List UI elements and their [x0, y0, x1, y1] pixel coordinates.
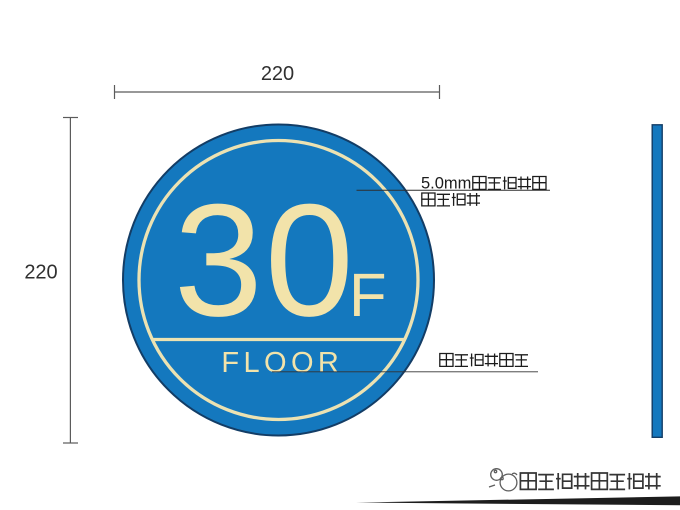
svg-text:FLOOR: FLOOR [221, 347, 343, 379]
svg-text:220: 220 [261, 63, 294, 85]
svg-text:5.0mm: 5.0mm [421, 175, 471, 193]
svg-text:220: 220 [24, 262, 57, 284]
svg-text:F: F [349, 261, 387, 330]
svg-text:30: 30 [174, 170, 356, 349]
